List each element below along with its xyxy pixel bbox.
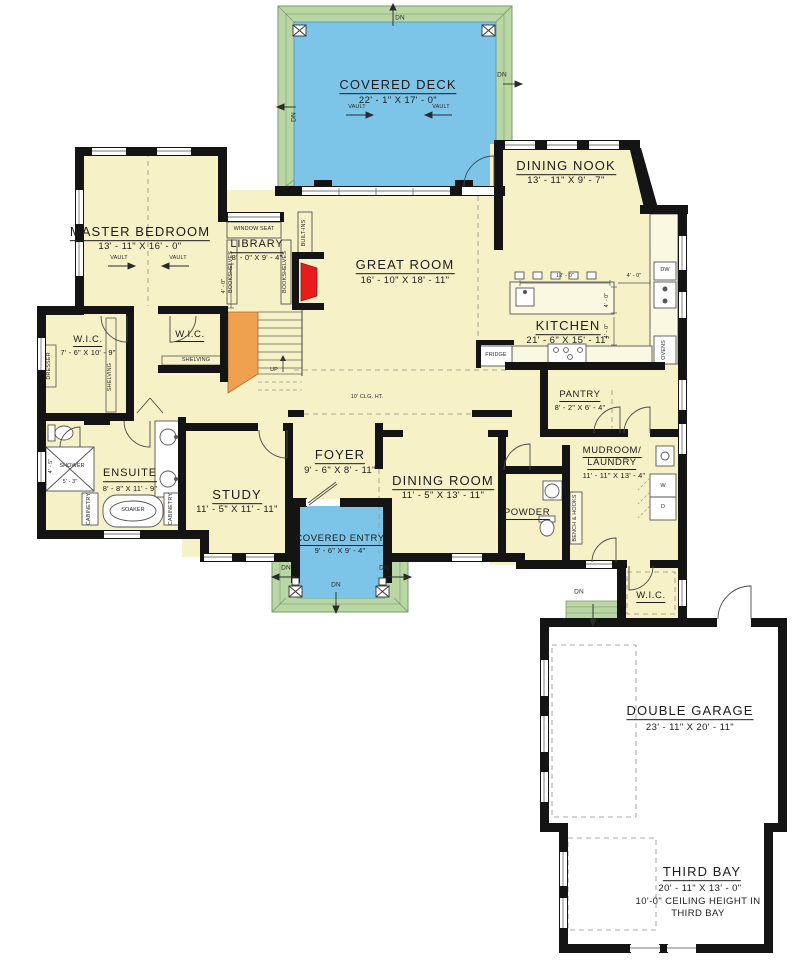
room-label-foyer: FOYER bbox=[315, 448, 365, 464]
room-dims-kitchen: 21' - 6" X 15' - 11" bbox=[526, 336, 609, 346]
room-label-dining-room: DINING ROOM bbox=[392, 474, 494, 490]
island-length-dim: 12' - 0" bbox=[556, 274, 574, 280]
room-label-double-garage: DOUBLE GARAGE bbox=[627, 704, 754, 720]
room-dims-mudroom: 11' - 11" X 13' - 4" bbox=[583, 472, 646, 480]
room-label-ensuite: ENSUITE bbox=[103, 468, 157, 482]
room-dims-library: 8' - 0" X 9' - 4" bbox=[232, 254, 283, 262]
room-dims-study: 11' - 5" X 11' - 11" bbox=[196, 505, 278, 515]
cabinetry-label: CABINETRY bbox=[87, 493, 93, 525]
room-label-library: LIBRARY bbox=[230, 239, 283, 253]
room-dims-great-room: 16' - 10" X 18' - 11" bbox=[361, 276, 450, 286]
vault-label: VAULT bbox=[169, 256, 186, 262]
island-depth-dim: 4' - 0" bbox=[605, 293, 611, 308]
shower-length-dim: 5' - 3" bbox=[63, 480, 78, 486]
dn-label: DN bbox=[497, 73, 507, 80]
built-ins-label: BUILT-INS bbox=[302, 220, 308, 247]
ovens-label: OVENS bbox=[662, 340, 668, 360]
vault-label: VAULT bbox=[348, 105, 365, 111]
bench-hooks-label: BENCH & HOOKS bbox=[573, 494, 579, 541]
dn-label: DN bbox=[395, 16, 405, 23]
shower-label: SHOWER bbox=[59, 464, 84, 470]
third-bay-note-line2: THIRD BAY bbox=[671, 909, 725, 919]
room-label-wic-hall: W.I.C. bbox=[175, 330, 204, 342]
third-bay-note-line1: 10'-0" CEILING HEIGHT IN bbox=[636, 897, 761, 907]
dn-label: DN bbox=[574, 590, 584, 597]
counter-dim: 4' - 0" bbox=[627, 274, 642, 280]
room-label-pantry: PANTRY bbox=[559, 390, 600, 402]
floor-plan: COVERED DECK 22' - 1" X 17' - 0" VAULT V… bbox=[0, 0, 800, 971]
room-label-mudroom-line2: LAUNDRY bbox=[587, 458, 636, 470]
room-dims-master-bedroom: 13' - 11" X 16' - 0" bbox=[98, 242, 181, 252]
bookshelves-label: BOOKSHELVES bbox=[283, 251, 289, 293]
up-label: UP bbox=[270, 368, 278, 374]
room-dims-double-garage: 23' - 11" X 20' - 11" bbox=[646, 723, 734, 733]
shower-width-dim: 4' - 5" bbox=[49, 459, 55, 474]
ceiling-height-label: 10' CLG. HT. bbox=[351, 395, 384, 401]
vault-label: VAULT bbox=[110, 256, 127, 262]
room-label-powder: POWDER bbox=[504, 508, 550, 520]
dryer-label: D bbox=[661, 505, 665, 511]
room-label-dining-nook: DINING NOOK bbox=[516, 159, 616, 175]
vault-label: VAULT bbox=[432, 105, 449, 111]
room-label-wic-master: W.I.C. bbox=[73, 335, 102, 347]
dn-label: DN bbox=[281, 566, 291, 573]
room-label-master-bedroom: MASTER BEDROOM bbox=[70, 225, 210, 241]
room-label-study: STUDY bbox=[212, 488, 262, 504]
washer-label: W bbox=[660, 484, 665, 490]
bookshelves-label: BOOKSHELVES bbox=[229, 251, 235, 293]
walkway-dim: 4' - 0" bbox=[605, 324, 611, 339]
dn-label: DN bbox=[292, 112, 299, 122]
library-depth-dim: 4' - 0" bbox=[222, 279, 228, 294]
room-label-covered-deck: COVERED DECK bbox=[339, 78, 456, 94]
room-label-great-room: GREAT ROOM bbox=[356, 258, 455, 274]
dresser-label: DRESSER bbox=[47, 352, 53, 379]
room-label-kitchen: KITCHEN bbox=[536, 319, 601, 335]
dw-label: DW bbox=[660, 268, 669, 274]
room-label-covered-entry: COVERED ENTRY bbox=[295, 534, 384, 546]
room-dims-foyer: 9' - 6" X 8' - 11" bbox=[304, 466, 376, 476]
fridge-label: FRIDGE bbox=[485, 353, 506, 359]
shelving-label: SHELVING bbox=[182, 358, 210, 364]
window-seat-label: WINDOW SEAT bbox=[234, 227, 275, 233]
room-dims-covered-entry: 9' - 6" X 9' - 4" bbox=[315, 547, 366, 555]
cabinetry-label: CABINETRY bbox=[169, 493, 175, 525]
room-dims-wic-master: 7' - 6" X 10' - 9" bbox=[60, 349, 115, 357]
room-label-third-bay: THIRD BAY bbox=[663, 865, 741, 881]
room-dims-pantry: 8' - 2" X 6' - 4" bbox=[555, 404, 606, 412]
shelving-label: SHELVING bbox=[108, 363, 114, 391]
room-label-wic-mud: W.I.C. bbox=[636, 591, 665, 603]
room-dims-dining-nook: 13' - 11" X 9' - 7" bbox=[527, 176, 604, 186]
dn-label: DN bbox=[379, 566, 389, 573]
soaker-label: SOAKER bbox=[121, 508, 145, 514]
room-dims-dining-room: 11' - 5" X 13' - 11" bbox=[402, 491, 484, 501]
room-dims-third-bay: 20' - 11" X 13' - 0" bbox=[658, 884, 741, 894]
dn-label: DN bbox=[331, 583, 341, 590]
room-dims-covered-deck: 22' - 1" X 17' - 0" bbox=[359, 96, 437, 106]
room-dims-ensuite: 8' - 8" X 11' - 9" bbox=[103, 485, 158, 493]
